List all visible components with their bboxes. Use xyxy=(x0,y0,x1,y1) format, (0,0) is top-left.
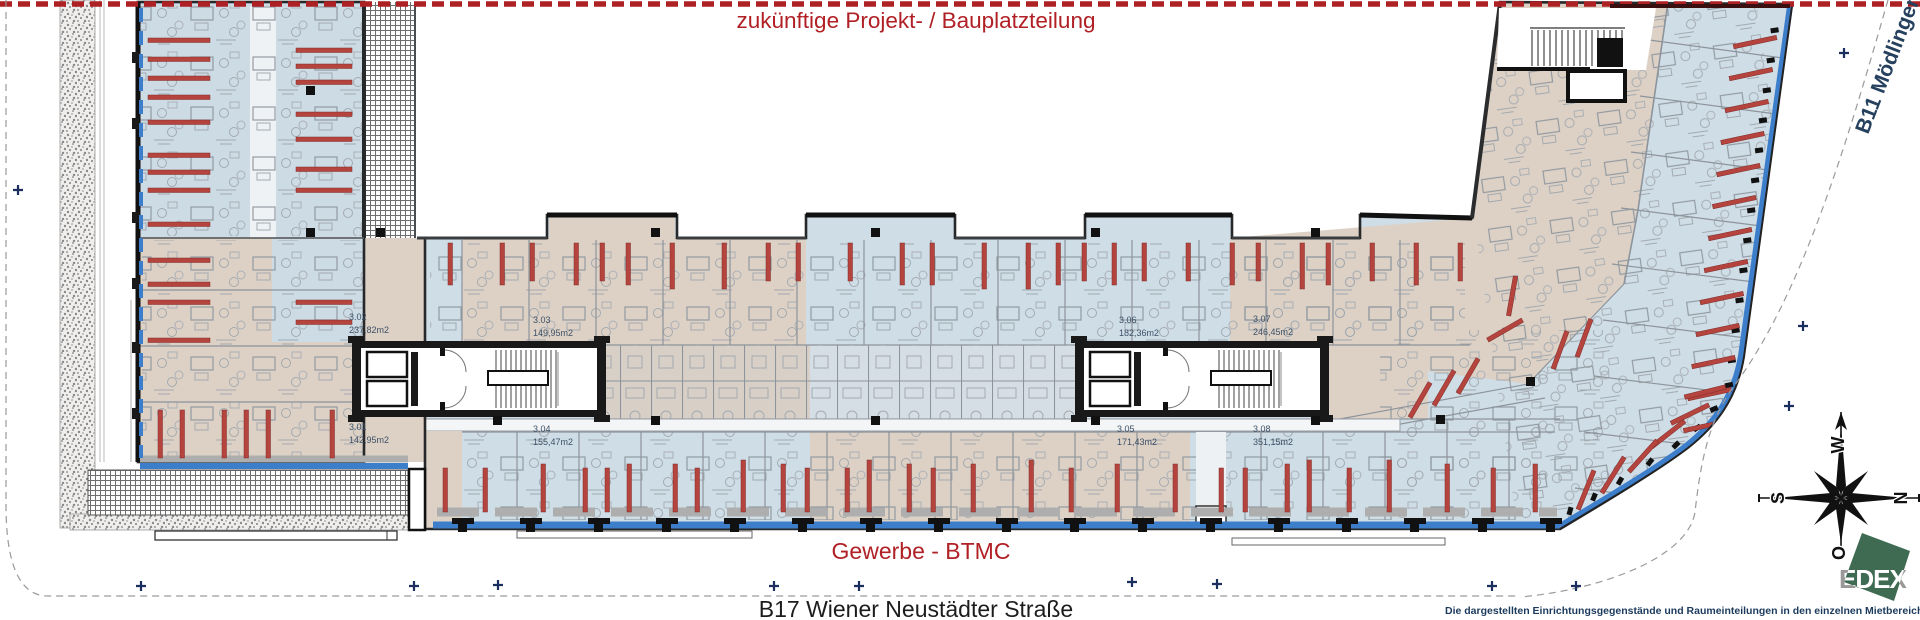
svg-text:155,47m2: 155,47m2 xyxy=(533,437,573,447)
svg-text:B17 Wiener Neustädter Straße: B17 Wiener Neustädter Straße xyxy=(759,596,1073,620)
svg-text:182,36m2: 182,36m2 xyxy=(1119,328,1159,338)
svg-text:3.05: 3.05 xyxy=(1117,424,1135,434)
svg-text:S: S xyxy=(1768,492,1788,504)
svg-text:3.02: 3.02 xyxy=(349,312,367,322)
svg-text:N: N xyxy=(1891,492,1911,505)
svg-text:3.03: 3.03 xyxy=(533,315,551,325)
svg-text:3.04: 3.04 xyxy=(533,424,551,434)
svg-text:O: O xyxy=(1829,546,1849,560)
svg-text:Die dargestellten Einrichtungs: Die dargestellten Einrichtungsgegenständ… xyxy=(1445,605,1920,617)
svg-text:149,95m2: 149,95m2 xyxy=(533,328,573,338)
svg-text:246,45m2: 246,45m2 xyxy=(1253,327,1293,337)
svg-text:237,82m2: 237,82m2 xyxy=(349,325,389,335)
svg-text:3.08: 3.08 xyxy=(1253,424,1271,434)
svg-text:3.07: 3.07 xyxy=(1253,314,1271,324)
svg-text:zukünftige Projekt- / Bauplatz: zukünftige Projekt- / Bauplatzteilung xyxy=(737,8,1096,33)
svg-text:142,95m2: 142,95m2 xyxy=(349,435,389,445)
svg-text:3.06: 3.06 xyxy=(1119,315,1137,325)
svg-text:171,43m2: 171,43m2 xyxy=(1117,437,1157,447)
svg-text:Gewerbe - BTMC: Gewerbe - BTMC xyxy=(832,538,1011,564)
svg-text:3.01: 3.01 xyxy=(349,422,367,432)
svg-text:351,15m2: 351,15m2 xyxy=(1253,437,1293,447)
svg-text:W: W xyxy=(1828,437,1848,454)
